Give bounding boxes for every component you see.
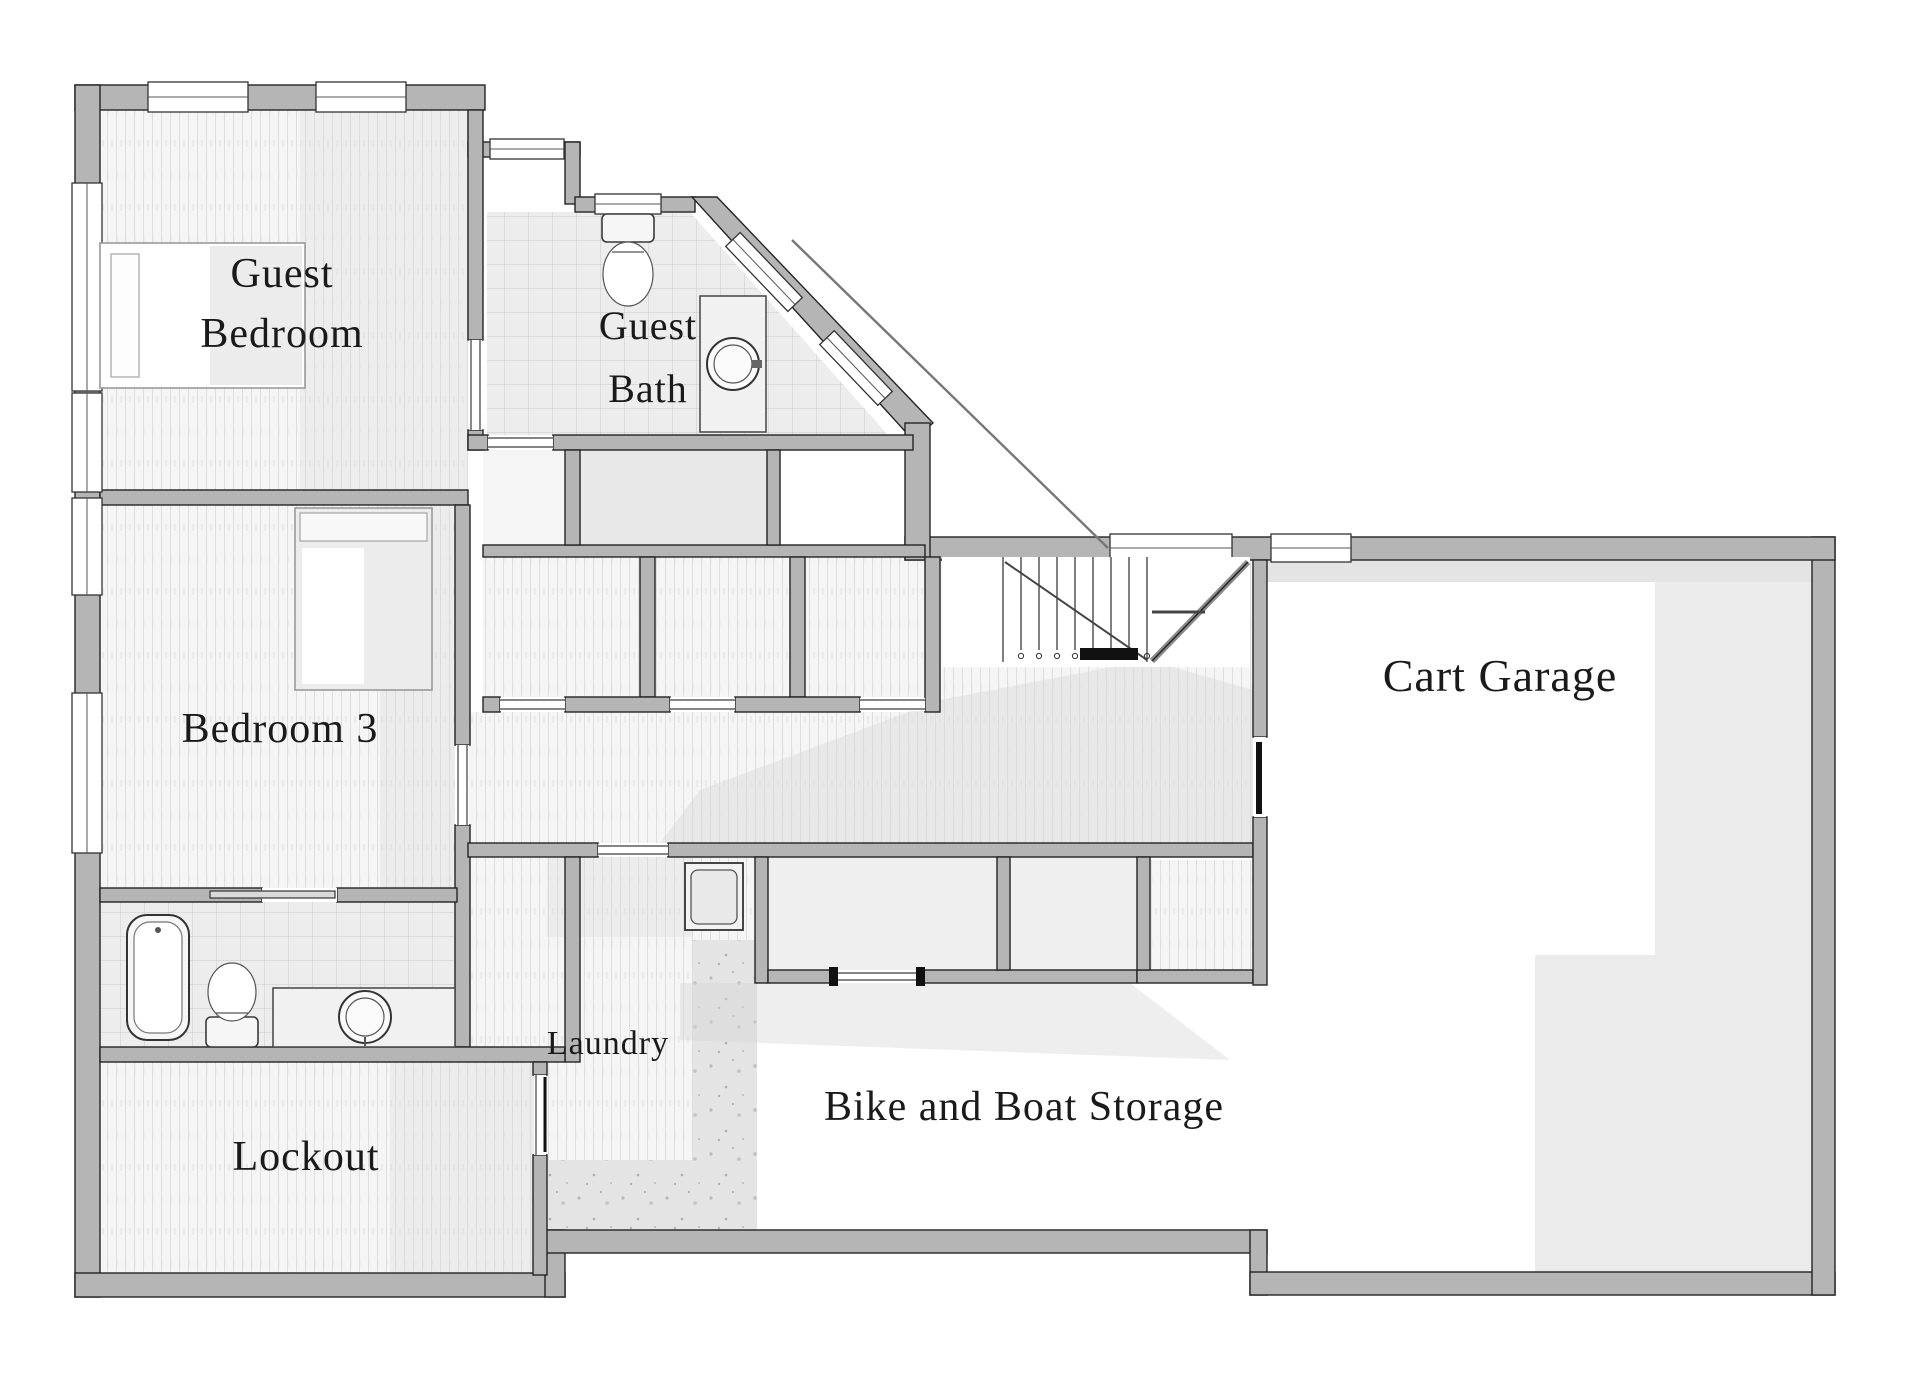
floor-closet-1 (483, 557, 640, 697)
room-label-laundry: Laundry (547, 1025, 669, 1062)
floor-plan-canvas: Guest Bedroom Guest Bath Bedroom 3 Locko… (0, 0, 1920, 1399)
wall-segment (483, 697, 500, 712)
wall-segment (1137, 970, 1253, 983)
toilet-icon-lower-bath (206, 963, 258, 1047)
room-label-guest-bedroom-line1: Guest (231, 251, 334, 297)
door-opening-closet-2 (670, 698, 735, 711)
room-label-guest-bath-line2: Bath (608, 366, 688, 411)
wall-segment (920, 970, 1137, 983)
wall-segment (75, 85, 485, 110)
sink-icon-guest-bath (700, 296, 766, 432)
room-label-bike-boat-storage: Bike and Boat Storage (824, 1084, 1224, 1130)
door-opening-guest-bedroom (469, 340, 482, 430)
wall-segment (468, 843, 598, 857)
floor-plan-svg: Guest Bedroom Guest Bath Bedroom 3 Locko… (0, 0, 1920, 1399)
room-label-cart-garage: Cart Garage (1383, 650, 1618, 701)
wall-segment (925, 557, 940, 712)
wall-segment (1253, 560, 1267, 737)
shadow-lockout (390, 1062, 547, 1273)
faucet-icon (155, 927, 161, 933)
window (72, 498, 102, 595)
toilet-icon-guest-bath (602, 214, 654, 306)
room-label-guest-bedroom-line2: Bedroom (200, 311, 363, 357)
window (72, 183, 102, 391)
wall-segment (337, 888, 457, 902)
door-opening-laundry (598, 844, 668, 856)
wall-segment (100, 1047, 565, 1062)
shadow-closet-upper (483, 450, 565, 545)
floor-utility-2 (1010, 857, 1137, 970)
wall-segment (468, 435, 488, 450)
door-leaf (1256, 742, 1262, 814)
wall-segment (100, 490, 468, 505)
wall-segment (468, 110, 483, 340)
wall-segment (905, 537, 1835, 560)
shadow-bike-storage (680, 983, 1230, 1060)
wall-segment (533, 1062, 547, 1075)
window (72, 393, 102, 492)
stair-gate (1080, 648, 1138, 660)
wall-segment (1812, 537, 1835, 1295)
door-opening-closet-1 (500, 698, 565, 711)
door-opening-bedroom-3 (456, 745, 469, 825)
door-opening-garage (1254, 737, 1266, 817)
wall-segment (533, 1155, 547, 1275)
door-jamb-block (916, 967, 925, 986)
wall-segment (455, 825, 470, 1047)
wall-segment (768, 970, 833, 983)
window (595, 194, 661, 214)
room-label-guest-bath-line1: Guest (599, 303, 697, 348)
floor-garage-passage (1150, 860, 1253, 970)
wall-segment (553, 435, 913, 450)
shadow-guest-bedroom (300, 110, 468, 490)
wall-segment (565, 450, 580, 545)
bed-icon-bedroom-3 (295, 508, 432, 690)
door-opening-closet-3 (860, 698, 925, 711)
window (490, 139, 564, 159)
wall-segment (735, 697, 860, 712)
window (148, 82, 248, 112)
door-opening-lockout (534, 1075, 546, 1155)
shadow-garage-top (1267, 560, 1812, 582)
floor-closet-2 (655, 557, 790, 697)
wall-segment (455, 505, 470, 745)
wall-segment (790, 557, 805, 697)
floor-closet-under-bath (580, 450, 767, 545)
wall-segment (545, 1230, 1267, 1253)
room-label-bedroom-3: Bedroom 3 (182, 706, 379, 752)
staircase (942, 557, 1250, 667)
wall-segment (483, 545, 925, 557)
room-label-lockout: Lockout (233, 1134, 380, 1180)
wall-segment (640, 557, 655, 697)
wall-segment (1250, 1272, 1835, 1295)
door-opening-guest-bath (488, 436, 553, 449)
wall-segment (565, 697, 670, 712)
wall-segment (1253, 817, 1267, 985)
wall-segment (997, 857, 1010, 970)
door-jamb-block (829, 967, 838, 986)
window (1271, 534, 1351, 562)
wall-segment (75, 1273, 565, 1297)
washer-icon (685, 863, 743, 930)
floor-closet-3 (805, 557, 925, 697)
wall-segment (668, 843, 1253, 857)
window (316, 82, 406, 112)
faucet-icon (752, 360, 762, 368)
wall-segment (1137, 857, 1150, 970)
window (72, 693, 102, 853)
wall-segment (755, 857, 768, 983)
wall-segment (767, 450, 780, 545)
wall-segment (565, 142, 580, 204)
bathtub-icon (127, 915, 189, 1040)
sink-icon-lower-bath (273, 988, 455, 1047)
floor-utility-1 (768, 857, 997, 970)
